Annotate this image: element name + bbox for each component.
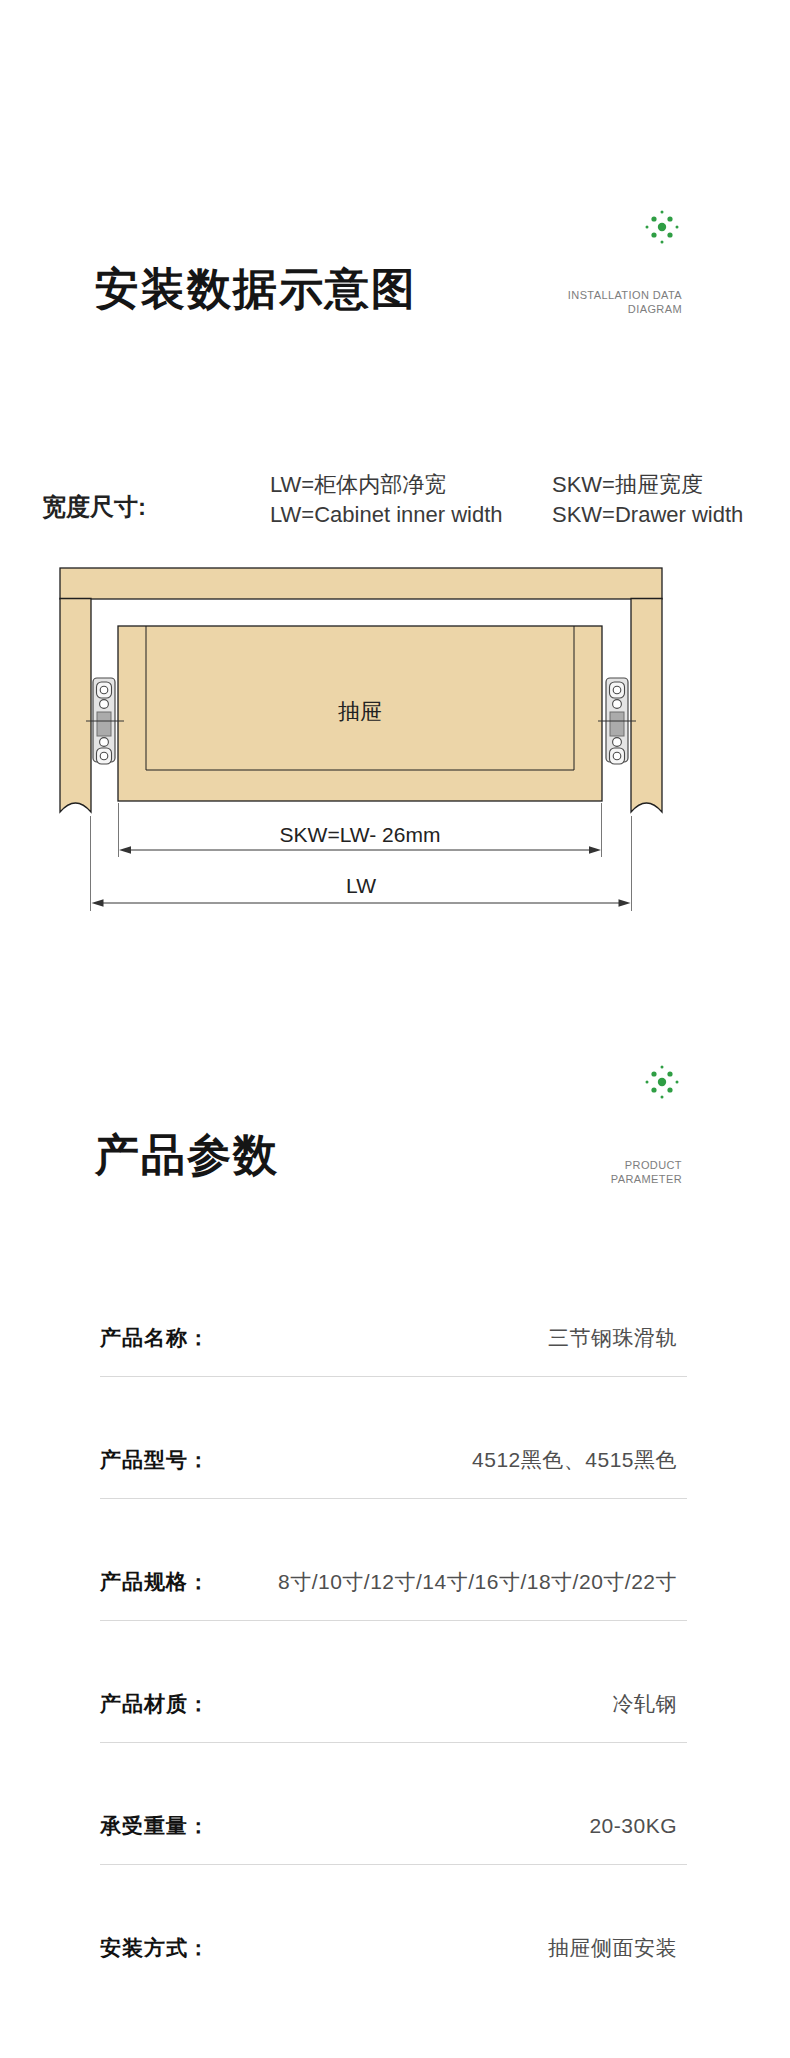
- param-value: 20-30KG: [589, 1814, 687, 1838]
- param-row-material: 产品材质： 冷轧钢: [100, 1690, 687, 1743]
- parameters-section-title: 产品参数: [95, 1132, 279, 1178]
- installation-section-title: 安装数据示意图: [95, 266, 417, 312]
- param-label: 承受重量：: [100, 1812, 210, 1840]
- legend-skw-cn: SKW=抽屉宽度: [552, 470, 743, 500]
- row-divider: [100, 1376, 687, 1377]
- drawer-label: 抽屉: [338, 699, 382, 724]
- param-value: 4512黑色、4515黑色: [472, 1446, 687, 1474]
- param-label: 产品名称：: [100, 1324, 210, 1352]
- sparkle-icon: [644, 209, 680, 245]
- installation-caption-line2: DIAGRAM: [568, 302, 682, 316]
- cabinet-right-panel: [631, 599, 662, 813]
- parameters-caption-line2: PARAMETER: [611, 1172, 682, 1186]
- right-slide-rail-icon: [598, 678, 636, 764]
- skw-dimension-label: SKW=LW- 26mm: [280, 823, 441, 846]
- cabinet-top-panel: [60, 568, 662, 599]
- param-row-product-name: 产品名称： 三节钢珠滑轨: [100, 1324, 687, 1377]
- skw-dimension: SKW=LW- 26mm: [119, 803, 602, 857]
- param-label: 产品材质：: [100, 1690, 210, 1718]
- param-value: 冷轧钢: [613, 1690, 688, 1718]
- sparkle-icon: [644, 1064, 680, 1100]
- row-divider: [100, 1742, 687, 1743]
- lw-dimension-label: LW: [346, 874, 376, 897]
- param-label: 安装方式：: [100, 1934, 210, 1962]
- param-value: 三节钢珠滑轨: [548, 1324, 687, 1352]
- legend-heading: 宽度尺寸:: [42, 491, 146, 523]
- row-divider: [100, 1498, 687, 1499]
- legend-skw-en: SKW=Drawer width: [552, 500, 743, 530]
- param-label: 产品型号：: [100, 1446, 210, 1474]
- param-value: 8寸/10寸/12寸/14寸/16寸/18寸/20寸/22寸: [278, 1568, 687, 1596]
- param-row-mounting: 安装方式： 抽屉侧面安装: [100, 1934, 687, 1962]
- param-value: 抽屉侧面安装: [548, 1934, 687, 1962]
- param-row-load: 承受重量： 20-30KG: [100, 1812, 687, 1865]
- legend-lw: LW=柜体内部净宽 LW=Cabinet inner width: [270, 470, 503, 530]
- row-divider: [100, 1864, 687, 1865]
- parameters-caption-line1: PRODUCT: [611, 1158, 682, 1172]
- cabinet-left-panel: [60, 599, 91, 813]
- product-detail-page: 安装数据示意图 INSTALLATION DATA DIAGRAM 宽度尺寸: …: [0, 0, 790, 2058]
- installation-diagram: 抽屉: [30, 555, 760, 935]
- installation-caption-line1: INSTALLATION DATA: [568, 288, 682, 302]
- param-row-model: 产品型号： 4512黑色、4515黑色: [100, 1446, 687, 1499]
- legend-lw-cn: LW=柜体内部净宽: [270, 470, 503, 500]
- legend-skw: SKW=抽屉宽度 SKW=Drawer width: [552, 470, 743, 530]
- legend-lw-en: LW=Cabinet inner width: [270, 500, 503, 530]
- parameters-section-caption: PRODUCT PARAMETER: [611, 1158, 682, 1186]
- param-row-spec: 产品规格： 8寸/10寸/12寸/14寸/16寸/18寸/20寸/22寸: [100, 1568, 687, 1621]
- param-label: 产品规格：: [100, 1568, 210, 1596]
- row-divider: [100, 1620, 687, 1621]
- installation-section-caption: INSTALLATION DATA DIAGRAM: [568, 288, 682, 316]
